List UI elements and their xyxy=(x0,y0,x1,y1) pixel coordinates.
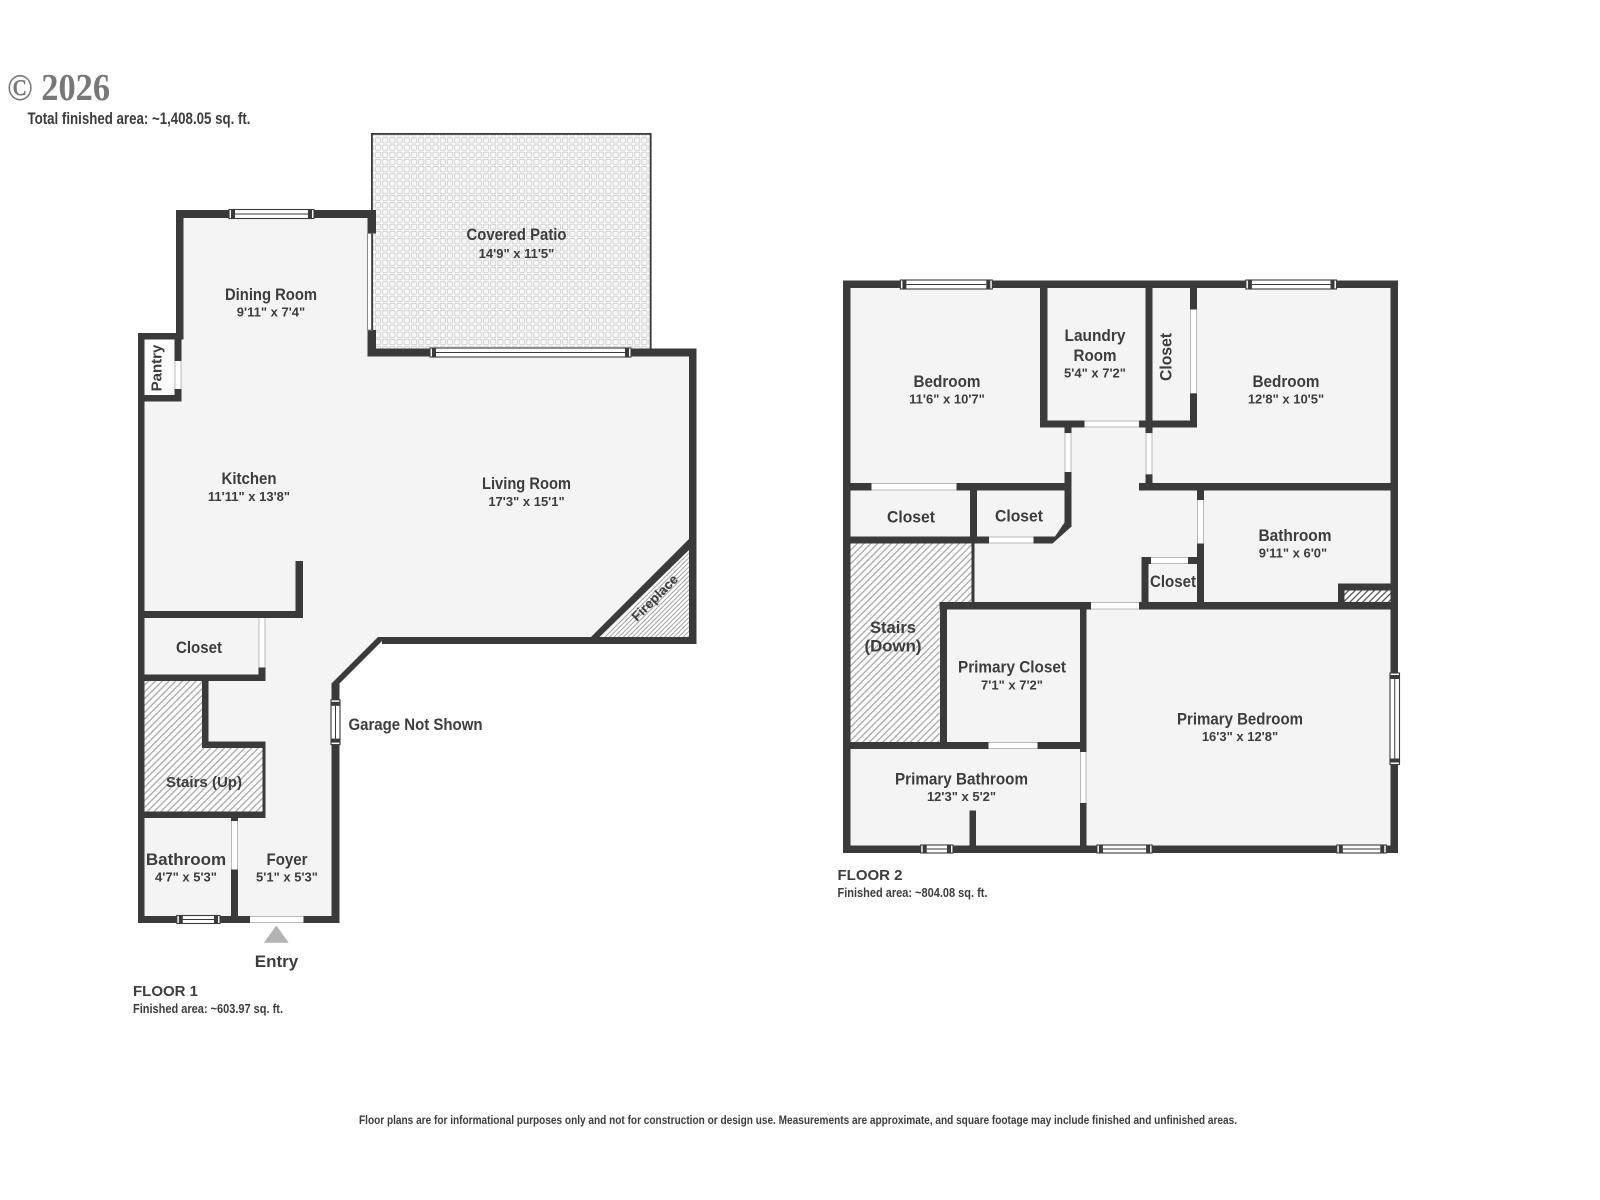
svg-text:Closet: Closet xyxy=(1150,573,1196,591)
svg-text:Pantry: Pantry xyxy=(149,344,166,391)
svg-text:(Down): (Down) xyxy=(865,637,922,656)
svg-text:FLOOR 2: FLOOR 2 xyxy=(838,867,903,884)
svg-text:5'4" x 7'2": 5'4" x 7'2" xyxy=(1064,366,1126,381)
svg-text:17'3" x 15'1": 17'3" x 15'1" xyxy=(488,494,564,509)
svg-text:Total finished area: ~1,408.05: Total finished area: ~1,408.05 sq. ft. xyxy=(28,109,251,128)
svg-text:16'3" x 12'8": 16'3" x 12'8" xyxy=(1202,729,1278,744)
svg-text:9'11" x 6'0": 9'11" x 6'0" xyxy=(1259,546,1327,561)
svg-text:Closet: Closet xyxy=(1158,333,1176,381)
svg-text:12'3" x 5'2": 12'3" x 5'2" xyxy=(927,789,996,804)
svg-text:Finished area: ~603.97 sq. ft.: Finished area: ~603.97 sq. ft. xyxy=(133,1002,283,1016)
svg-text:Bathroom: Bathroom xyxy=(146,850,226,869)
svg-text:Dining Room: Dining Room xyxy=(225,285,317,304)
svg-text:Bathroom: Bathroom xyxy=(1259,526,1332,545)
svg-text:© 2026: © 2026 xyxy=(7,67,110,109)
svg-text:Covered Patio: Covered Patio xyxy=(467,225,567,244)
svg-text:Primary Bathroom: Primary Bathroom xyxy=(895,770,1028,789)
svg-text:Closet: Closet xyxy=(887,509,935,527)
svg-text:Entry: Entry xyxy=(255,952,299,971)
svg-text:Stairs: Stairs xyxy=(870,618,916,637)
svg-text:Bedroom: Bedroom xyxy=(1253,372,1320,391)
svg-text:Bedroom: Bedroom xyxy=(914,372,981,391)
svg-text:14'9" x 11'5": 14'9" x 11'5" xyxy=(479,246,555,261)
svg-text:9'11" x 7'4": 9'11" x 7'4" xyxy=(237,305,305,320)
svg-text:Living Room: Living Room xyxy=(482,474,571,493)
svg-text:Stairs (Up): Stairs (Up) xyxy=(166,774,242,791)
svg-text:Closet: Closet xyxy=(176,639,222,657)
svg-text:Primary Closet: Primary Closet xyxy=(958,658,1066,677)
svg-text:11'6" x 10'7": 11'6" x 10'7" xyxy=(909,392,985,407)
svg-text:Room: Room xyxy=(1074,346,1117,365)
svg-text:4'7" x 5'3": 4'7" x 5'3" xyxy=(155,870,217,885)
svg-text:Finished area: ~804.08 sq. ft.: Finished area: ~804.08 sq. ft. xyxy=(838,886,988,900)
svg-text:Floor plans are for informatio: Floor plans are for informational purpos… xyxy=(359,1113,1237,1127)
svg-text:Kitchen: Kitchen xyxy=(222,469,277,488)
svg-text:Closet: Closet xyxy=(995,508,1043,526)
svg-text:FLOOR 1: FLOOR 1 xyxy=(133,983,198,1000)
svg-text:Garage Not Shown: Garage Not Shown xyxy=(349,715,483,734)
svg-text:Laundry: Laundry xyxy=(1065,326,1126,345)
svg-text:12'8" x 10'5": 12'8" x 10'5" xyxy=(1248,392,1324,407)
svg-text:7'1" x 7'2": 7'1" x 7'2" xyxy=(981,678,1043,693)
svg-text:Foyer: Foyer xyxy=(267,850,308,869)
svg-text:Primary Bedroom: Primary Bedroom xyxy=(1177,710,1303,729)
svg-text:11'11" x 13'8": 11'11" x 13'8" xyxy=(208,489,290,504)
svg-text:5'1" x 5'3": 5'1" x 5'3" xyxy=(256,870,318,885)
